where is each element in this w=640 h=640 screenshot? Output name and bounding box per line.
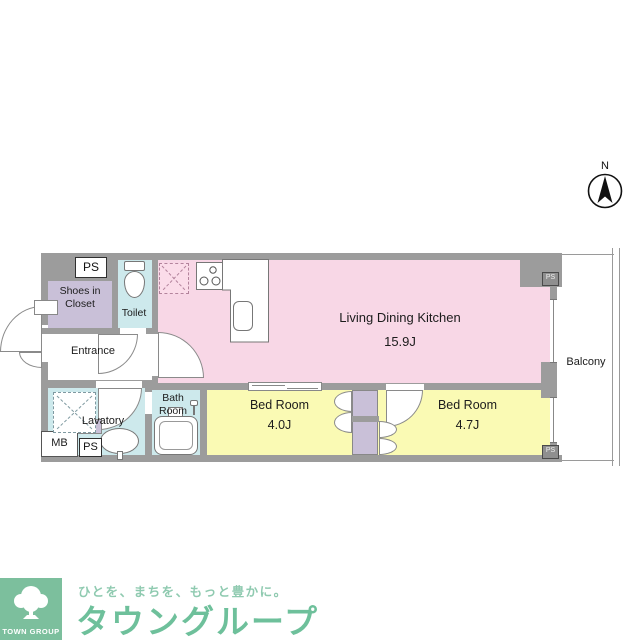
lavatory-door-gap — [96, 381, 142, 388]
wall-hall-ldk-stub — [152, 376, 158, 390]
wall-left-mid — [41, 315, 48, 325]
bedroom2-name: Bed Room — [395, 398, 540, 413]
stove-burners-icon — [196, 262, 225, 290]
bedroom2-size: 4.7J — [395, 418, 540, 433]
bedroom2-window — [550, 397, 557, 443]
wall-toilet-left — [112, 260, 118, 334]
ldk-label: Living Dining Kitchen 15.9J — [290, 310, 510, 349]
wall-toilet-right — [152, 260, 158, 334]
compass-north-label: N — [584, 160, 626, 173]
ps-mini-bottomright: PS — [542, 445, 559, 459]
bedroom1-name: Bed Room — [207, 398, 352, 413]
mb-label: MB — [42, 437, 77, 450]
footer-logo: TOWN GROUP ひとを、まちを、もっと豊かに。 タウングループ — [0, 578, 380, 640]
toilet-tank — [124, 261, 145, 271]
bedroom2-label: Bed Room 4.7J — [395, 398, 540, 433]
lavatory-sink-stem — [117, 451, 123, 460]
balcony-label: Balcony — [557, 356, 615, 369]
compass-icon — [586, 172, 624, 210]
shoes-closet-label: Shoes in Closet — [53, 285, 107, 311]
balcony-rail-outer-line — [619, 248, 620, 466]
bedroom1-label: Bed Room 4.0J — [207, 398, 352, 433]
lavatory-label: Lavatory — [58, 415, 148, 428]
refrigerator-x-icon — [159, 263, 189, 294]
balcony-bottom-line — [557, 460, 614, 461]
compass: N — [584, 160, 626, 212]
mb-box: MB — [41, 431, 78, 457]
shower-hose-icon — [193, 406, 195, 415]
sliding-door-panel-line2 — [287, 388, 318, 389]
ldk-name: Living Dining Kitchen — [290, 310, 510, 326]
entrance-label: Entrance — [48, 345, 138, 358]
floorplan-page: N — [0, 0, 640, 640]
wall-top — [41, 253, 562, 260]
toilet-label: Toilet — [112, 307, 156, 320]
town-group-logo: TOWN GROUP — [0, 578, 62, 640]
wall-divider-ldk-bed — [147, 383, 557, 390]
ps-bottom-label: PS — [83, 441, 98, 453]
bedroom2-window-midline — [553, 398, 554, 442]
bathroom-door-gap — [145, 392, 152, 414]
tree-icon — [9, 583, 53, 623]
wall-right-block — [541, 362, 557, 398]
bathtub-inner — [159, 421, 193, 450]
sliding-door-panel-line1 — [252, 385, 285, 386]
ps-top-label: PS — [83, 260, 99, 274]
kitchen-sink — [233, 301, 253, 331]
town-group-text: TOWN GROUP — [0, 627, 62, 636]
ps-box-top: PS — [75, 257, 107, 278]
bedroom1-sliding-door — [248, 382, 322, 391]
wall-bath-right — [200, 383, 207, 462]
wall-closet-divider — [351, 416, 379, 422]
ps-mini-topright: PS — [542, 272, 559, 286]
closet-column — [352, 390, 378, 455]
footer-brand: タウングループ — [76, 595, 319, 640]
ldk-window — [550, 299, 557, 363]
ldk-size: 15.9J — [290, 334, 510, 350]
ldk-window-midline — [553, 300, 554, 362]
wall-left-upper — [41, 281, 48, 302]
ps-box-bottom: PS — [79, 438, 102, 457]
front-door-arc-small — [19, 352, 42, 368]
balcony-top-line — [557, 254, 614, 255]
bedroom1-size: 4.0J — [207, 418, 352, 433]
bathroom-label: Bath Room — [153, 392, 193, 418]
